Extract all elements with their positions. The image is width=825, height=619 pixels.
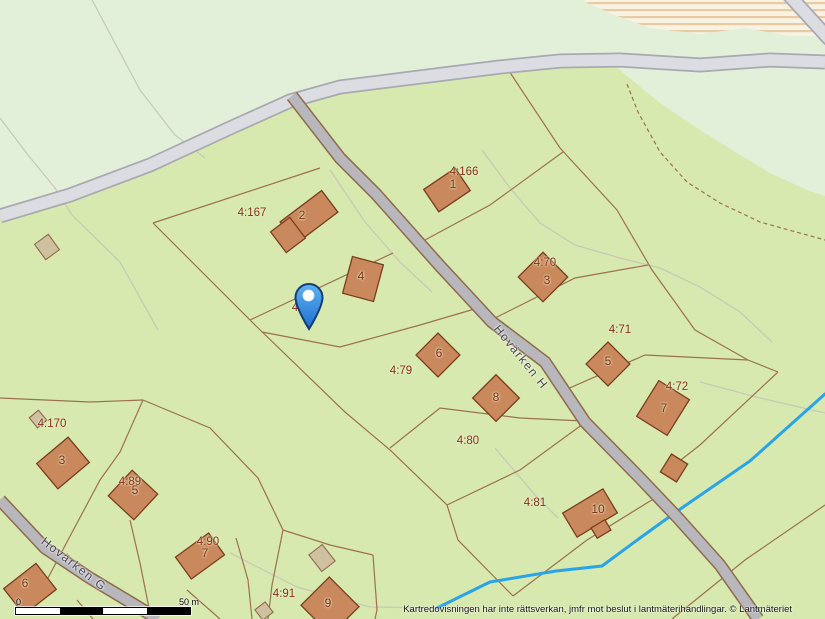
parcel-label-4-70: 4:70 (534, 257, 556, 269)
parcel-label-4-80: 4:80 (457, 435, 479, 447)
building-number-7b: 7 (202, 546, 209, 560)
parcel-label-4-79: 4:79 (390, 365, 412, 377)
building-number-3b: 3 (59, 453, 66, 467)
parcel-label-4-170: 4:170 (38, 418, 67, 430)
building-number-6: 6 (436, 346, 443, 360)
building-number-8: 8 (493, 390, 500, 404)
building-number-7: 7 (661, 401, 668, 415)
shed-4 (255, 602, 273, 619)
building-number-6b: 6 (22, 576, 29, 590)
scale-bar: 0 50 m (15, 597, 191, 615)
building-number-1: 1 (450, 177, 457, 191)
stream (437, 394, 825, 608)
shed-1 (35, 234, 60, 259)
map-canvas[interactable]: 4:167 4:166 4:70 4:71 4:72 4:78 4:79 4:8… (0, 0, 825, 619)
parcel-label-4-81: 4:81 (524, 497, 546, 509)
location-pin[interactable] (291, 280, 327, 332)
building-number-5b: 5 (132, 483, 139, 497)
scale-bar-labels: 0 50 m (15, 597, 191, 607)
scale-end-label: 50 m (179, 597, 199, 607)
parcel-label-4-167: 4:167 (238, 207, 267, 219)
buildings (4, 168, 690, 619)
building-number-3: 3 (544, 273, 551, 287)
scale-start-label: 0 (16, 597, 21, 607)
building-number-2: 2 (299, 208, 306, 222)
map-graphics (0, 0, 825, 619)
building-number-10: 10 (591, 502, 604, 516)
parcel-label-4-72: 4:72 (666, 381, 688, 393)
building-number-9: 9 (325, 596, 332, 610)
scale-bar-graphic (15, 607, 191, 615)
location-pin-dot (303, 290, 315, 302)
map-attribution: Kartredovisningen har inte rättsverkan, … (403, 604, 792, 615)
shed-3 (309, 544, 335, 571)
building-number-5: 5 (605, 354, 612, 368)
parcel-label-4-91: 4:91 (273, 588, 295, 600)
parcel-label-4-71: 4:71 (609, 324, 631, 336)
building-number-4: 4 (358, 269, 365, 283)
